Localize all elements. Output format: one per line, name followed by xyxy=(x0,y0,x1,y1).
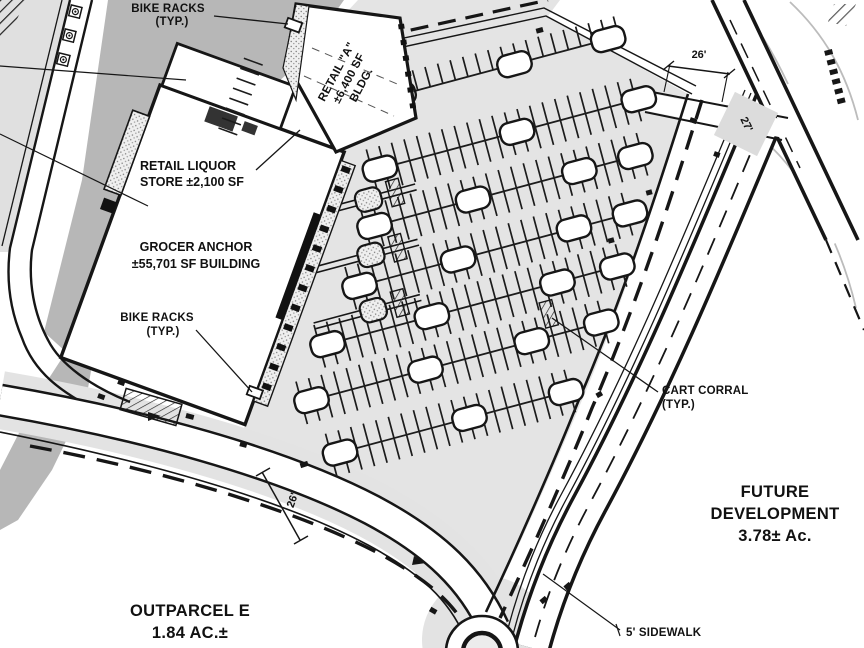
cart-corral-label: CART CORRAL xyxy=(662,385,749,397)
retail-liquor-label-2: STORE ±2,100 SF xyxy=(140,175,244,189)
ne-road-continuation xyxy=(826,240,864,330)
outparcel-label-2: 1.84 AC.± xyxy=(152,624,228,642)
site-plan-canvas: BIKE RACKS (TYP.) RETAIL "A" ±6,400 SF B… xyxy=(0,0,864,648)
future-development-label-2: DEVELOPMENT xyxy=(711,505,840,523)
landscape-island xyxy=(589,24,628,54)
retail-liquor-label: RETAIL LIQUOR xyxy=(140,159,236,173)
bike-racks-side-label-2: (TYP.) xyxy=(147,326,180,338)
bike-racks-top-label: BIKE RACKS xyxy=(131,3,205,15)
future-development-label-3: 3.78± Ac. xyxy=(738,527,812,545)
dimension-line xyxy=(668,66,730,74)
future-development-label: FUTURE xyxy=(741,483,810,501)
sidewalk-label: 5' SIDEWALK xyxy=(626,627,702,639)
bike-racks-side-label: BIKE RACKS xyxy=(120,312,194,324)
cart-corral-label-2: (TYP.) xyxy=(662,399,695,411)
grocer-anchor-label: GROCER ANCHOR xyxy=(140,240,253,254)
grocer-anchor-label-2: ±55,701 SF BUILDING xyxy=(132,257,260,271)
site-plan-drawing: BIKE RACKS (TYP.) RETAIL "A" ±6,400 SF B… xyxy=(0,0,864,648)
ramp-hatch xyxy=(828,4,856,26)
dim-26-top: 26' xyxy=(692,49,707,61)
dimension-tick xyxy=(294,536,308,544)
bike-racks-top-label-2: (TYP.) xyxy=(156,16,189,28)
crosswalk-ladder xyxy=(828,50,842,104)
outparcel-label: OUTPARCEL E xyxy=(130,602,250,620)
